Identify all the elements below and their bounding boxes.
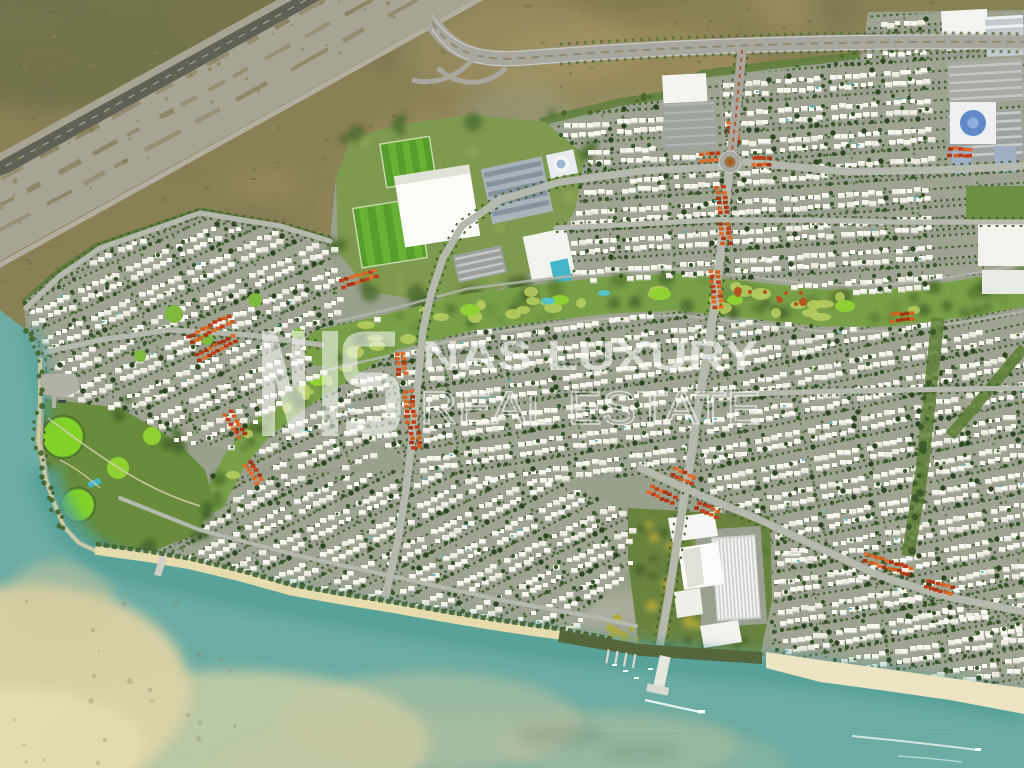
svg-text:NAS LUXURY: NAS LUXURY bbox=[422, 332, 758, 379]
svg-text:REAL ESTATE: REAL ESTATE bbox=[420, 382, 761, 434]
